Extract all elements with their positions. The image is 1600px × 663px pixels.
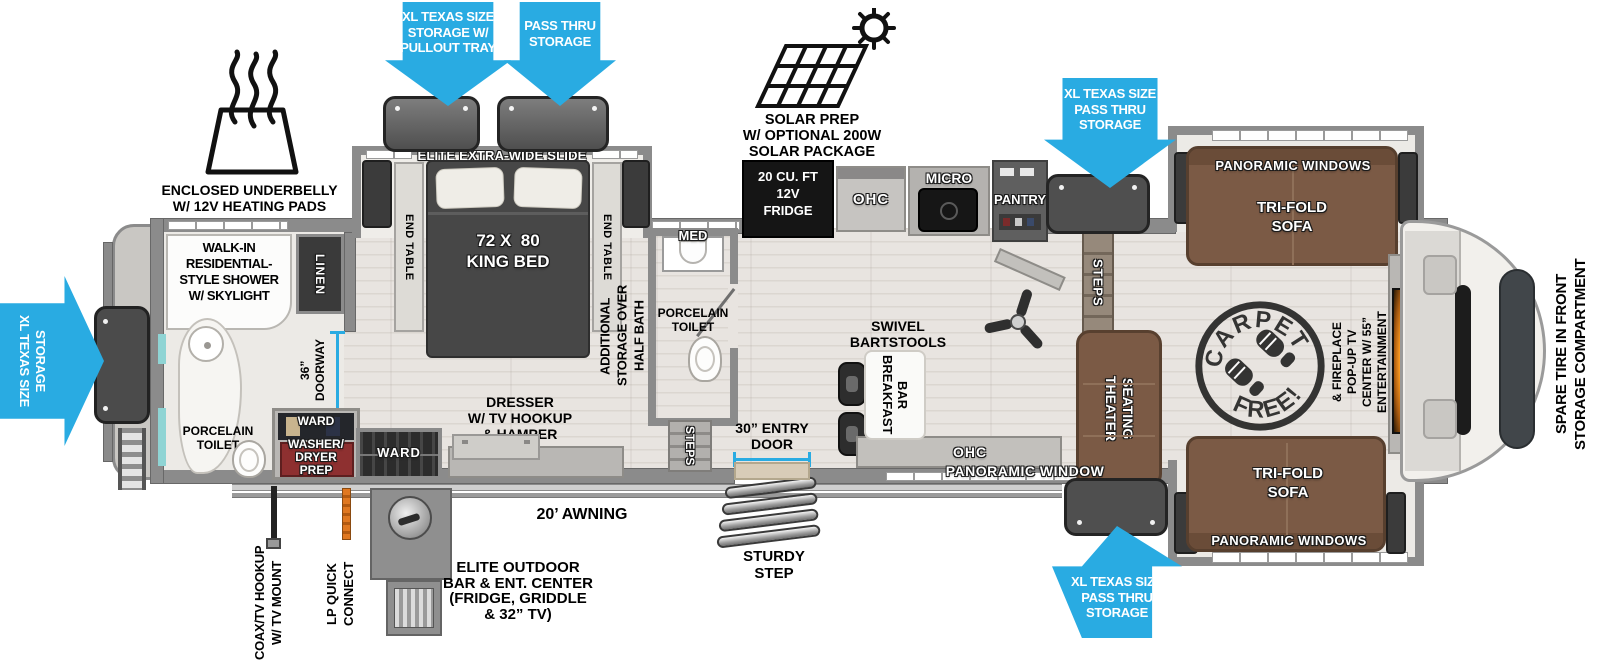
arrow-pass-thru: PASS THRU STORAGE (504, 2, 616, 106)
entertainment-label: ENTERTAINMENT CENTER W/ 55” POP-UP TV & … (1330, 262, 1390, 462)
king-bed-label: 72 X 80 KING BED (426, 230, 590, 272)
breakfast-bar: BREAKFAST BAR (864, 350, 926, 440)
linen-label: LINEN (299, 237, 341, 311)
end-table-left: END TABLE (394, 162, 424, 332)
entry-measure-line (734, 458, 810, 461)
linen-closet: LINEN (296, 234, 344, 314)
coax-label: COAX/TV HOOKUP W/ TV MOUNT (246, 544, 290, 662)
storage-box (383, 96, 480, 152)
front-upper-storage-door (1046, 174, 1150, 234)
rear-storage-door (94, 306, 150, 424)
ohc-upper-label: OHC (853, 191, 889, 208)
shower-glass (158, 408, 166, 466)
cap-tv-slot (1455, 285, 1471, 435)
solar-label: SOLAR PREP W/ OPTIONAL 200W SOLAR PACKAG… (723, 112, 901, 160)
range-icon (918, 188, 978, 232)
cap-cabinet (1423, 399, 1457, 439)
coax-cable-icon (271, 486, 277, 540)
lp-quick-connect-label: LP QUICK CONNECT (320, 546, 360, 642)
ceiling-fan-icon (982, 286, 1054, 358)
rear-toilet (232, 440, 266, 478)
front-cap (1400, 220, 1546, 482)
windows-upper-label: PANORAMIC WINDOWS (1198, 158, 1388, 173)
outdoor-sink-icon (388, 496, 432, 540)
lp-connector-icon (342, 488, 351, 540)
panoramic-window-label: PANORAMIC WINDOW (880, 463, 1170, 479)
entry-door-sill (734, 462, 810, 480)
awning-label: 20’ AWNING (520, 506, 644, 524)
micro-label: MICRO (908, 170, 990, 186)
underbelly-label: ENCLOSED UNDERBELLY W/ 12V HEATING PADS (142, 182, 357, 214)
windows-lower-label: PANORAMIC WINDOWS (1194, 533, 1384, 548)
halfbath-steps: STEPS (668, 420, 712, 472)
awning-rail (232, 493, 1062, 498)
living-steps-label: STEPS (1084, 234, 1112, 332)
rear-ladder-icon (118, 428, 146, 490)
fridge-label: 20 CU. FT 12V FRIDGE (742, 168, 834, 219)
arrow-front-upper-passthru: XL TEXAS SIZE PASS THRU STORAGE (1044, 78, 1176, 188)
shower-glass (158, 334, 166, 364)
arrow-front-lower-passthru: XL TEXAS SIZE PASS THRU STORAGE (1052, 526, 1182, 638)
bedroom-ward-label: WARD (360, 445, 438, 460)
cap-window (1499, 269, 1535, 449)
med-label: MED (660, 228, 726, 243)
cap-cabinet (1423, 255, 1457, 295)
halfbath-steps-label: STEPS (670, 422, 710, 470)
washer-label: WASHER/ DRYER PREP (270, 438, 362, 477)
doorway-measure-tick (330, 331, 345, 334)
bath-wall (344, 232, 356, 332)
pantry-label: PANTRY (986, 192, 1054, 207)
sturdy-step-label: STURDY STEP (726, 548, 822, 582)
arrow-rear-storage-label: XL TEXAS SIZE STORAGE (16, 315, 48, 407)
pillow (513, 167, 582, 209)
lower-slide-window (1212, 552, 1408, 563)
rv-floorplan-diagram: WALK-IN RESIDENTIAL- STYLE SHOWER W/ SKY… (0, 0, 1600, 663)
carpet-free-stamp: CARPET FREE! (1172, 278, 1348, 454)
breakfast-bar-label: BREAKFAST BAR (880, 355, 910, 434)
doorway-label: 36” DOORWAY (294, 328, 332, 412)
bootprint-icon (1221, 355, 1267, 400)
bedroom-slide-sidewindow (622, 160, 650, 228)
sofa-lower-label: TRI-FOLD SOFA (1218, 464, 1358, 502)
barstool (838, 362, 866, 406)
storage-box (497, 96, 609, 152)
window-top-shower (168, 221, 288, 230)
arrow-rear-storage: XL TEXAS SIZE STORAGE (0, 276, 104, 446)
shower-label: WALK-IN RESIDENTIAL- STYLE SHOWER W/ SKY… (166, 240, 292, 304)
outdoor-bar-label: ELITE OUTDOOR BAR & ENT. CENTER (FRIDGE,… (420, 560, 616, 622)
solar-panel-icon (750, 8, 900, 112)
doorway-measure-line (336, 332, 339, 410)
pillow (435, 167, 504, 209)
stools-label: SWIVEL BARTSTOOLS (836, 318, 960, 350)
entry-door-label: 30” ENTRY DOOR (722, 420, 822, 452)
heating-pads-icon (196, 48, 308, 180)
theater-seating-label: THEATER SEATING (1102, 376, 1136, 441)
lower-slide-sidewindow (1386, 492, 1406, 554)
sturdy-step-stairs (710, 475, 829, 554)
bedroom-ward: WARD (356, 428, 442, 480)
upper-slide-window (1212, 130, 1408, 141)
bedroom-slide-sidewindow (362, 160, 392, 228)
arrow-storage-pullout: XL TEXAS SIZE STORAGE W/ PULLOUT TRAY (385, 2, 511, 106)
ohc-upper: OHC (836, 166, 906, 232)
dresser-tv (452, 434, 540, 460)
upper-slide-sidewindow (1398, 152, 1418, 224)
rear-ward-label: WARD (272, 414, 360, 428)
spare-tire-label: SPARE TIRE IN FRONT STORAGE COMPARTMENT (1548, 224, 1594, 484)
sofa-upper-label: TRI-FOLD SOFA (1222, 198, 1362, 236)
awning-rail (232, 484, 1062, 491)
ohc-lower-label: OHC (938, 444, 1002, 460)
end-table-label: END TABLE (403, 214, 415, 281)
living-steps: STEPS (1082, 232, 1114, 334)
halfbath-toilet-label: PORCELAIN TOILET (650, 306, 736, 334)
bath-sink (188, 326, 224, 362)
halfbath-overhead-label: ADDITIONAL STORAGE OVER HALF BATH (594, 248, 650, 424)
halfbath-toilet (688, 336, 722, 382)
